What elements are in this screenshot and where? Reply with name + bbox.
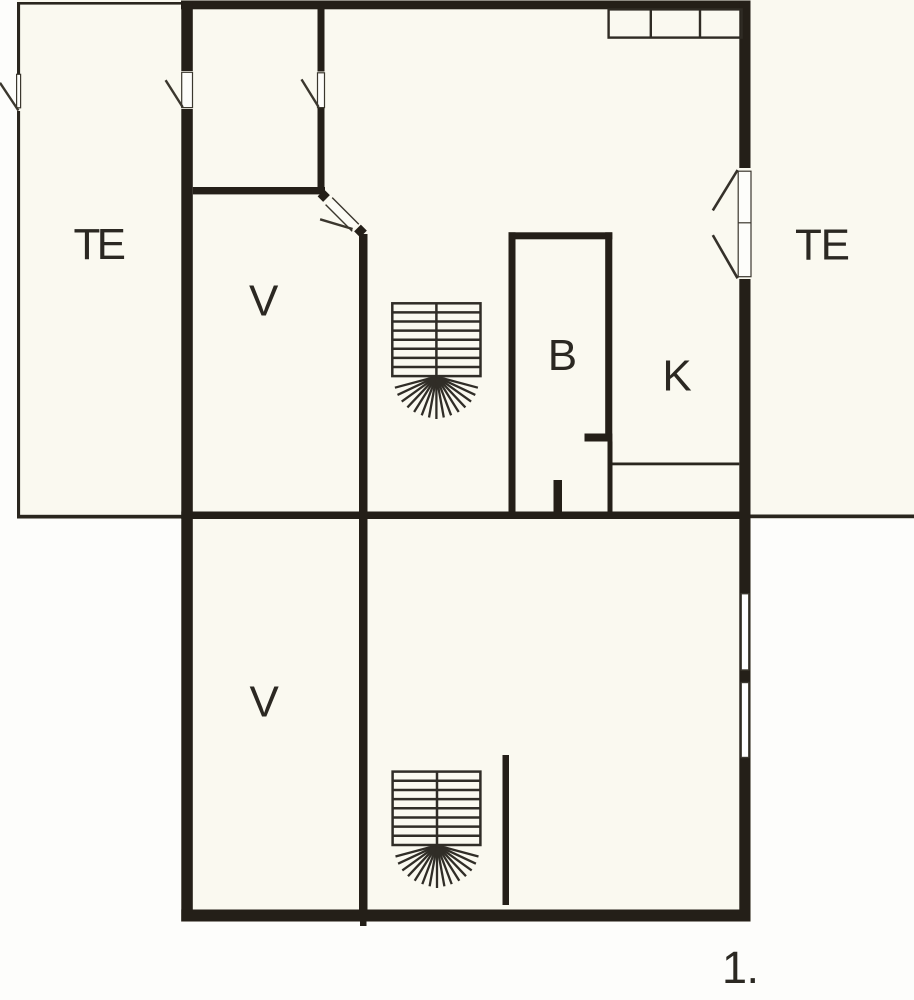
svg-text:1.: 1. xyxy=(722,942,759,993)
svg-text:TE: TE xyxy=(74,220,127,269)
svg-text:B: B xyxy=(548,331,577,380)
svg-text:V: V xyxy=(249,277,279,326)
svg-text:K: K xyxy=(662,352,691,401)
svg-text:V: V xyxy=(250,677,280,726)
svg-text:TE: TE xyxy=(795,221,850,270)
